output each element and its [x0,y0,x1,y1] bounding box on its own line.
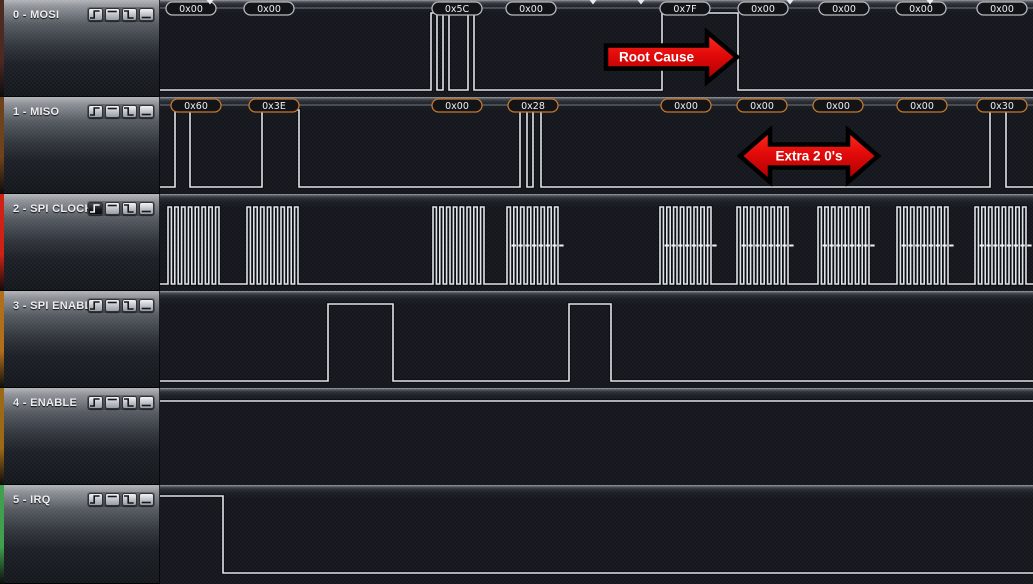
low-level-icon [141,495,152,504]
channel-row-miso: 1 - MISO [0,97,1033,194]
trigger-low-level-button[interactable] [139,105,154,118]
logic-analyzer-window: 0 - MOSI 1 - MISO 2 - SPI CLOCK 3 - SPI … [0,0,1033,584]
channel-panel[interactable]: 1 - MISO [0,97,160,194]
channel-label: 1 - MISO [13,106,59,118]
trigger-falling-edge-button[interactable] [122,8,137,21]
high-level-icon [107,10,118,19]
trigger-rising-edge-button[interactable] [88,202,103,215]
high-level-icon [107,204,118,213]
rising-edge-icon [90,107,101,116]
trigger-low-level-button[interactable] [139,396,154,409]
rising-edge-icon [90,204,101,213]
channel-color-stripe [0,388,4,485]
channel-panel[interactable]: 0 - MOSI [0,0,160,97]
trigger-high-level-button[interactable] [105,493,120,506]
waveform-area[interactable] [160,97,1033,194]
falling-edge-icon [124,301,135,310]
falling-edge-icon [124,10,135,19]
waveform-area[interactable] [160,291,1033,388]
trigger-rising-edge-button[interactable] [88,396,103,409]
falling-edge-icon [124,107,135,116]
rising-edge-icon [90,301,101,310]
channel-panel[interactable]: 5 - IRQ [0,485,160,584]
low-level-icon [141,107,152,116]
trigger-button-group [87,7,155,22]
trigger-rising-edge-button[interactable] [88,299,103,312]
channel-row-spi-enable: 3 - SPI ENABLE [0,291,1033,388]
trigger-rising-edge-button[interactable] [88,8,103,21]
trigger-falling-edge-button[interactable] [122,202,137,215]
trigger-high-level-button[interactable] [105,396,120,409]
channel-color-stripe [0,194,4,291]
trigger-high-level-button[interactable] [105,8,120,21]
trigger-button-group [87,395,155,410]
trigger-falling-edge-button[interactable] [122,493,137,506]
falling-edge-glyph [125,205,133,212]
trigger-button-group [87,104,155,119]
trigger-high-level-button[interactable] [105,202,120,215]
channel-color-stripe [0,97,4,194]
trigger-falling-edge-button[interactable] [122,105,137,118]
falling-edge-glyph [125,399,133,406]
channel-color-stripe [0,291,4,388]
waveform-area[interactable] [160,388,1033,485]
trigger-falling-edge-button[interactable] [122,299,137,312]
falling-edge-glyph [125,11,133,18]
low-level-icon [141,301,152,310]
falling-edge-icon [124,495,135,504]
rising-edge-icon [90,398,101,407]
trigger-low-level-button[interactable] [139,202,154,215]
channel-panel[interactable]: 2 - SPI CLOCK [0,194,160,291]
low-level-icon [141,398,152,407]
trigger-low-level-button[interactable] [139,493,154,506]
channel-row-spi-clock: 2 - SPI CLOCK [0,194,1033,291]
rising-edge-glyph [91,108,99,115]
trigger-low-level-button[interactable] [139,8,154,21]
trigger-falling-edge-button[interactable] [122,396,137,409]
rising-edge-icon [90,10,101,19]
channel-row-irq: 5 - IRQ [0,485,1033,584]
trigger-button-group [87,492,155,507]
channel-panel[interactable]: 4 - ENABLE [0,388,160,485]
channel-label: 5 - IRQ [13,494,51,506]
channel-color-stripe [0,485,4,584]
falling-edge-glyph [125,108,133,115]
falling-edge-icon [124,398,135,407]
falling-edge-icon [124,204,135,213]
high-level-icon [107,107,118,116]
falling-edge-glyph [125,496,133,503]
rising-edge-glyph [91,11,99,18]
channel-row-mosi: 0 - MOSI [0,0,1033,97]
rising-edge-icon [90,495,101,504]
rising-edge-glyph [91,302,99,309]
high-level-icon [107,495,118,504]
channel-label: 4 - ENABLE [13,397,77,409]
trigger-rising-edge-button[interactable] [88,105,103,118]
trigger-button-group [87,298,155,313]
channel-color-stripe [0,0,4,97]
low-level-icon [141,10,152,19]
trigger-button-group [87,201,155,216]
trigger-rising-edge-button[interactable] [88,493,103,506]
low-level-icon [141,204,152,213]
waveform-area[interactable] [160,485,1033,584]
channel-label: 2 - SPI CLOCK [13,203,93,215]
waveform-area[interactable] [160,0,1033,97]
trigger-low-level-button[interactable] [139,299,154,312]
high-level-icon [107,398,118,407]
channel-panel[interactable]: 3 - SPI ENABLE [0,291,160,388]
rising-edge-glyph [91,399,99,406]
high-level-icon [107,301,118,310]
rising-edge-glyph [91,205,99,212]
waveform-area[interactable] [160,194,1033,291]
rising-edge-glyph [91,496,99,503]
channel-label: 0 - MOSI [13,9,59,21]
trigger-high-level-button[interactable] [105,105,120,118]
channel-row-enable: 4 - ENABLE [0,388,1033,485]
trigger-high-level-button[interactable] [105,299,120,312]
falling-edge-glyph [125,302,133,309]
